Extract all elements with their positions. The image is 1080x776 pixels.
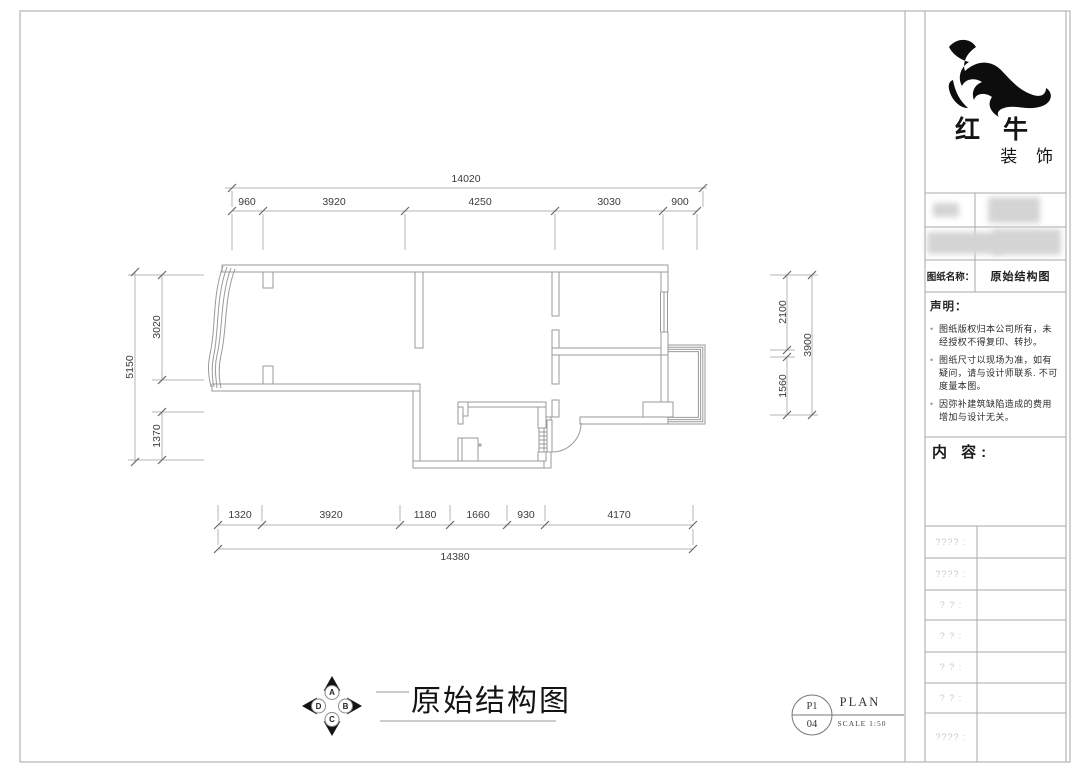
walls (212, 265, 673, 468)
dim-bottom-seg-4: 1660 (453, 509, 503, 521)
compass-letter-a: A (325, 687, 339, 698)
redacted-text (993, 229, 1061, 255)
brand-name: 红 牛 (925, 110, 1066, 146)
dim-top-seg-1: 960 (222, 196, 272, 208)
brand-type: 装 饰 (925, 142, 1060, 167)
dim-right-total: 3900 (802, 320, 814, 370)
statement-title: 声明： (930, 298, 1060, 314)
dim-bottom-seg-1: 1320 (215, 509, 265, 521)
scale-label: SCALE 1:50 (834, 719, 890, 728)
redacted-text (933, 203, 959, 217)
dim-top-seg-5: 900 (655, 196, 705, 208)
dim-left-seg-1: 3020 (151, 302, 163, 352)
content-label: 内 容: (932, 441, 991, 462)
panel-row-label: ? ? : (927, 661, 975, 673)
statement-item: 因弥补建筑缺陷造成的费用增加与设计无关。 (930, 398, 1060, 424)
sheet-number-bottom: 04 (797, 719, 827, 730)
dim-left-seg-2: 1370 (151, 411, 163, 461)
panel-row-label: ???? : (927, 536, 975, 548)
dim-right-seg-2: 1560 (777, 361, 789, 411)
panel-row-label: ???? : (927, 568, 975, 580)
right-wall-window (661, 292, 668, 332)
dim-bottom-seg-5: 930 (501, 509, 551, 521)
bay-window (208, 266, 235, 388)
floor-plan-canvas (0, 0, 1080, 776)
plan-type-label: PLAN (836, 695, 884, 710)
redacted-text (927, 232, 1001, 254)
compass-letter-d: D (312, 701, 326, 712)
dim-bottom-seg-2: 3920 (306, 509, 356, 521)
dim-bottom-seg-6: 4170 (594, 509, 644, 521)
statement-item: 图纸版权归本公司所有，未经授权不得复印、转抄。 (930, 323, 1060, 349)
dim-right-seg-1: 2100 (777, 287, 789, 337)
dim-top-seg-4: 3030 (584, 196, 634, 208)
statement-item: 图纸尺寸以现场为准，如有疑问，请与设计师联系. 不可度量本图。 (930, 354, 1060, 393)
panel-row-label: ???? : (927, 731, 975, 743)
bathroom-door-arc (552, 423, 581, 452)
statement-section: 声明： 图纸版权归本公司所有，未经授权不得复印、转抄。 图纸尺寸以现场为准，如有… (930, 298, 1060, 429)
panel-row-label: ? ? : (927, 599, 975, 611)
dim-bottom-total: 14380 (425, 551, 485, 563)
sheet-number-top: P1 (797, 701, 827, 712)
dim-top-seg-2: 3920 (309, 196, 359, 208)
redacted-text (988, 197, 1040, 223)
compass-letter-b: B (339, 701, 353, 712)
panel-row-label: ? ? : (927, 630, 975, 642)
compass-letter-c: C (325, 714, 339, 725)
page-frame (20, 11, 1070, 762)
drawing-title: 原始结构图 (411, 676, 571, 720)
dimension-ticks (131, 184, 816, 553)
brand-logo-icon (949, 40, 1051, 117)
drawing-name-value: 原始结构图 (975, 268, 1066, 284)
floor-drain (478, 443, 481, 446)
dim-bottom-seg-3: 1180 (400, 509, 450, 521)
blueprint-sheet: 14020 960 3920 4250 3030 900 1320 3920 1… (0, 0, 1080, 776)
dim-top-seg-3: 4250 (455, 196, 505, 208)
panel-row-label: ? ? : (927, 692, 975, 704)
balcony-window (668, 345, 705, 424)
dimension-lines (128, 188, 818, 549)
dim-top-total: 14020 (436, 173, 496, 185)
dim-left-total: 5150 (124, 342, 136, 392)
bathroom-window-hatch (539, 428, 547, 452)
drawing-name-label: 图纸名称： (926, 269, 975, 283)
